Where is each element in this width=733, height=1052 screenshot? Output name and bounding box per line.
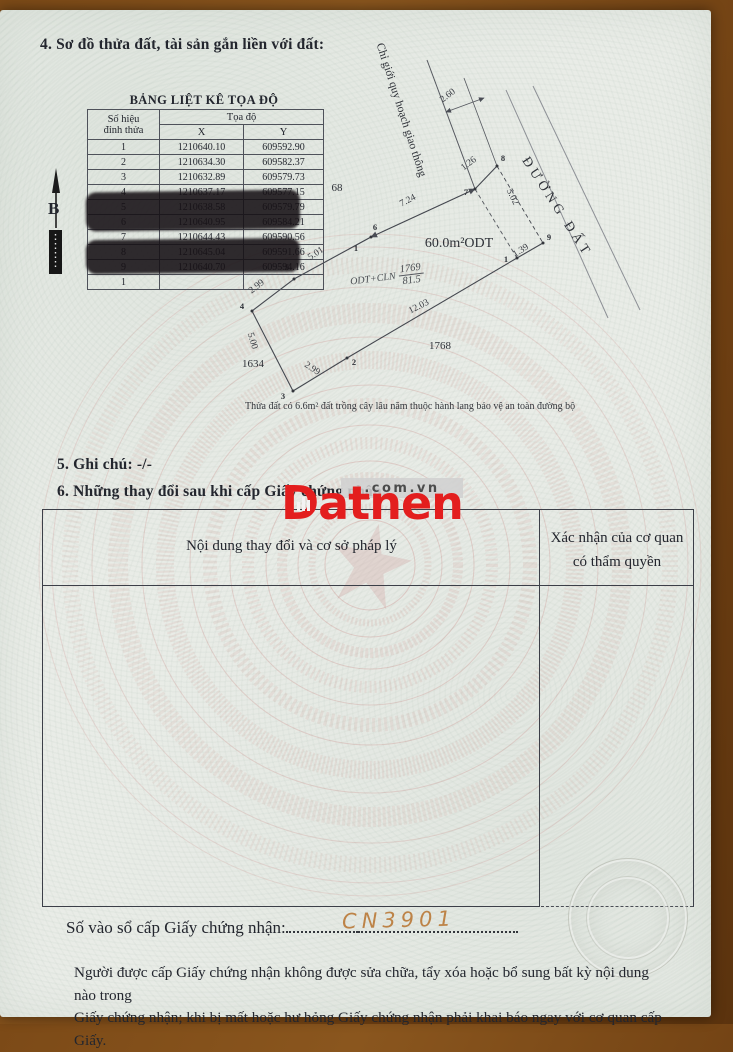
- vertex-number-label: 8: [501, 153, 505, 163]
- footer-warning-paragraph: Người được cấp Giấy chứng nhận không đượ…: [74, 962, 674, 1052]
- parcel-use: ODT+CLN: [350, 271, 397, 287]
- register-number-handwritten: CN3901: [342, 907, 456, 934]
- dimension-label: 1.26: [459, 155, 478, 173]
- dimension-label: 12.03: [407, 298, 431, 317]
- footer-line-2: Giấy chứng nhận; khi bị mất hoặc hư hỏng…: [74, 1007, 674, 1052]
- embossed-seal-inner-ring: [586, 876, 670, 960]
- parcel-area-label: 1634: [242, 358, 264, 370]
- section5-title: 5. Ghi chú: -/-: [57, 456, 152, 474]
- section4-title: 4. Sơ đồ thửa đất, tài sản gắn liền với …: [40, 36, 324, 54]
- parcel-area-label: 1768: [429, 340, 451, 352]
- changes-table-left-column: [43, 510, 540, 907]
- changes-col2-header: Xác nhận của cơ quan có thẩm quyền: [541, 526, 693, 574]
- vertex-number-label: 4: [240, 301, 244, 311]
- vertex-dot: [346, 357, 349, 360]
- vertex-number-label: 7: [464, 187, 468, 197]
- parcel-number-area-fraction: 1769 81.5: [397, 262, 425, 288]
- vertex-dot: [474, 188, 477, 191]
- vertex-number-label: 6: [373, 222, 377, 232]
- register-label: Số vào sổ cấp Giấy chứng nhận:: [66, 918, 286, 937]
- coord-x-header: X: [160, 125, 244, 140]
- vertex-number-label: 1: [354, 243, 358, 253]
- vertex-dot: [542, 242, 545, 245]
- photographed-land-certificate-page: { "page": { "section4_title": "4. Sơ đồ …: [0, 0, 733, 1024]
- coord-col1-header: Số hiệu đỉnh thửa: [88, 110, 160, 140]
- dimension-label: 1.39: [511, 242, 530, 259]
- coord-table-row: 11210640.10609592.90: [88, 140, 324, 155]
- changes-col1-header: Nội dung thay đổi và cơ sở pháp lý: [43, 538, 540, 555]
- dimension-label: 2.60: [438, 87, 457, 105]
- vertex-number-label: 2: [352, 357, 356, 367]
- vertex-dot: [370, 236, 373, 239]
- changes-table-header-divider: [43, 585, 693, 586]
- redaction-mark-rows-8-9: [86, 238, 300, 274]
- vertex-number-label: 9: [547, 232, 551, 242]
- parcel-area-label: 68: [332, 182, 343, 194]
- vertex-dot: [496, 165, 499, 168]
- parcel-note: Thửa đất có 6.6m² đất trồng cây lâu năm …: [245, 401, 575, 412]
- coord-y-header: Y: [244, 125, 324, 140]
- vertex-number-label: 1: [504, 254, 508, 264]
- watermark-building-icon: [297, 497, 310, 511]
- dimension-label: 7.24: [398, 193, 417, 210]
- coord-table-title: BẢNG LIỆT KÊ TỌA ĐỘ: [86, 93, 322, 108]
- dimension-label: 5.02: [504, 187, 520, 206]
- coord-span-header: Tọa độ: [160, 110, 324, 125]
- redaction-mark-rows-5-6: [86, 190, 301, 232]
- vertex-dot: [251, 310, 254, 313]
- parcel-area-label: 60.0m²ODT: [425, 236, 493, 252]
- dimension-label: 5.00: [245, 332, 259, 351]
- vertex-dot: [516, 257, 519, 260]
- changes-table: Nội dung thay đổi và cơ sở pháp lý Xác n…: [42, 509, 694, 907]
- footer-line-1: Người được cấp Giấy chứng nhận không đượ…: [74, 962, 674, 1007]
- coord-table-row: 31210632.89609579.73: [88, 170, 324, 185]
- vertex-dot: [293, 278, 296, 281]
- planning-line-label: Chỉ giới quy hoạch giao thông: [374, 42, 429, 179]
- compass-north-label: B: [48, 199, 59, 219]
- dimension-label: 2.99: [302, 360, 321, 377]
- parcel-id-label: ODT+CLN 1769 81.5: [349, 262, 425, 294]
- vertex-dot: [292, 390, 295, 393]
- coord-table-row: 1: [88, 275, 324, 290]
- coord-table-row: 21210634.30609582.37: [88, 155, 324, 170]
- road-name-label: ĐƯỜNG ĐẤT: [519, 154, 596, 260]
- vertex-number-label: 3: [281, 391, 285, 401]
